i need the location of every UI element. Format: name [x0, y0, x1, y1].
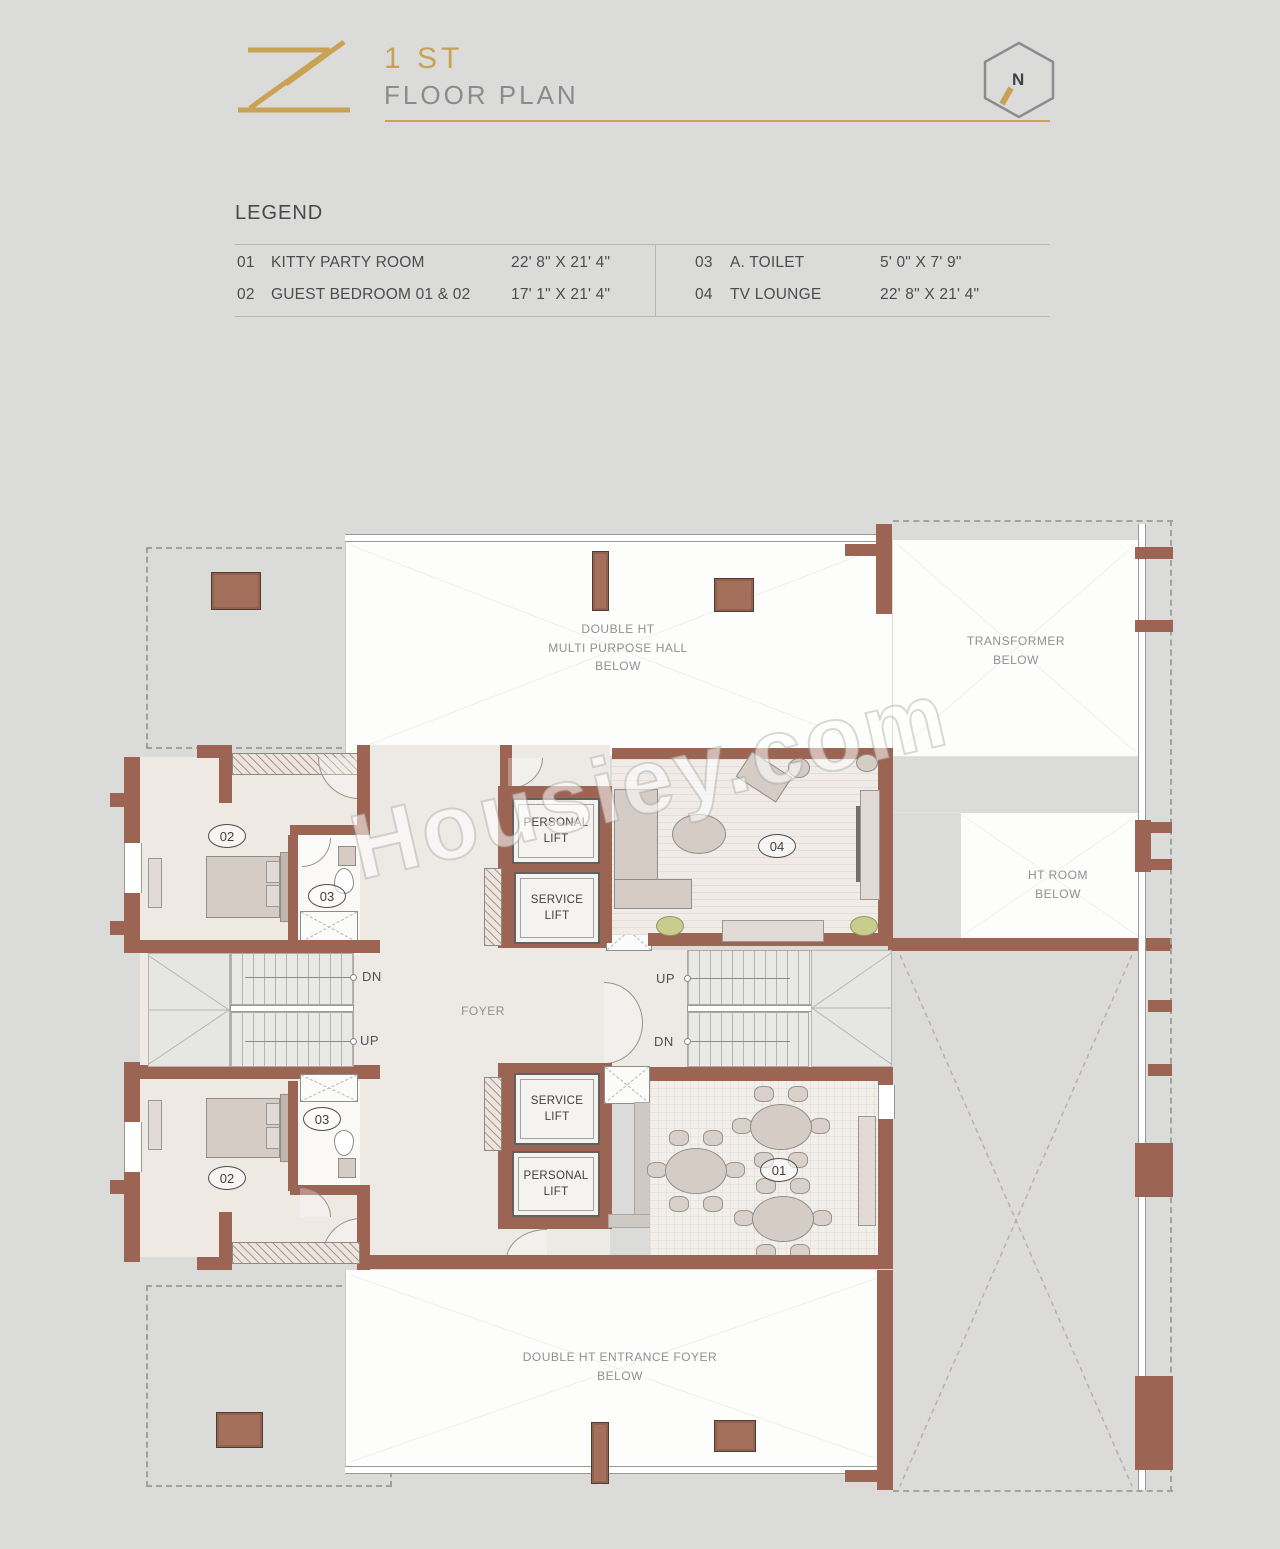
floor-plan: 02 03 PERSONAL LIFT SERVICE LIFT — [0, 0, 1280, 1549]
transformer-label: TRANSFORMER BELOW — [941, 632, 1091, 669]
floor-plan-page: 1 ST FLOOR PLAN N LEGEND 01 KITTY PARTY … — [0, 0, 1280, 1549]
ht-room-label: HT ROOM BELOW — [993, 866, 1123, 903]
entrance-foyer-label: DOUBLE HT ENTRANCE FOYER BELOW — [470, 1348, 770, 1385]
hall-label: DOUBLE HT MULTI PURPOSE HALL BELOW — [488, 620, 748, 676]
plan-guide-lines — [0, 0, 1280, 1549]
